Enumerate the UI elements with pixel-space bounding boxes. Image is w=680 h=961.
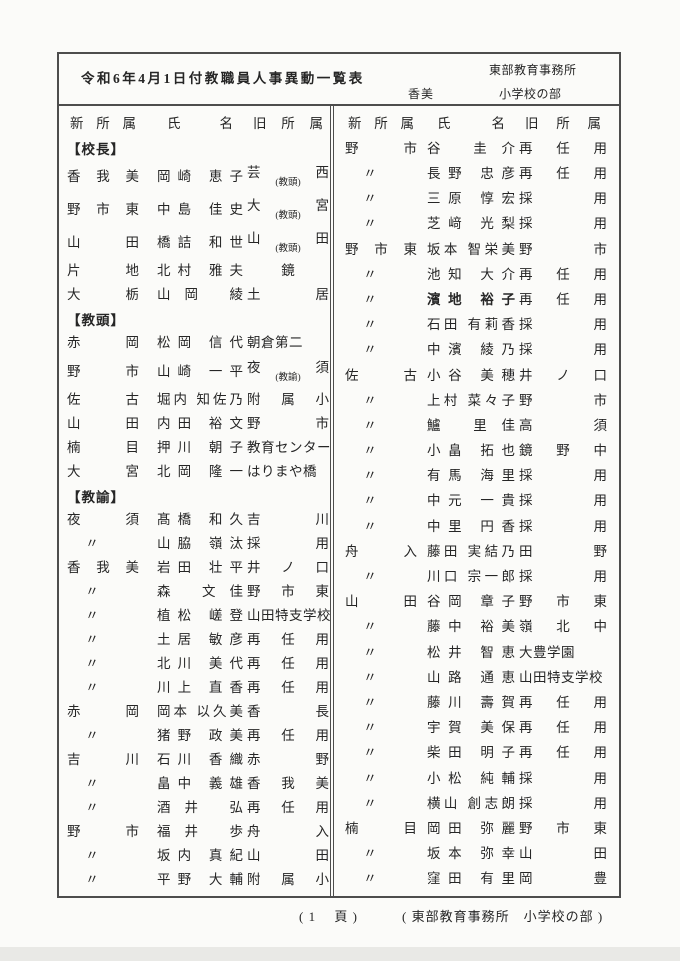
cell-name: 山脇 嶺汰 [157, 536, 243, 552]
cell-old-affiliation: 井ノ口 [519, 368, 607, 384]
table-row: 〃長野 忠彦再任用 [345, 161, 615, 186]
cell-new-affiliation: 〃 [345, 796, 417, 812]
cell-name: 畠中 義雄 [157, 776, 243, 792]
cell-name: 中元 一貴 [427, 493, 515, 509]
cell-old-affiliation: 野市東 [519, 821, 607, 837]
cell-new-affiliation: 〃 [345, 745, 417, 761]
cell-name: 山岡 綾 [157, 287, 243, 303]
table-row: 赤岡岡本 以久美香長 [67, 700, 331, 724]
cell-name: 内田 裕文 [157, 416, 243, 432]
table-row: 大宮北岡 隆一はりまや橋 [67, 460, 331, 484]
cell-name: 藤川 壽賀 [427, 695, 515, 711]
table-row: 〃宇賀 美保再任用 [345, 715, 615, 740]
table-row: 野市東坂本 智栄美野市 [345, 237, 615, 262]
cell-name: 岡本 以久美 [157, 704, 243, 720]
cell-old-affiliation: 採用 [519, 796, 607, 812]
cell-new-affiliation: 〃 [67, 680, 139, 696]
cell-old-affiliation: 採用 [519, 493, 607, 509]
cell-new-affiliation: 楠目 [67, 440, 139, 456]
cell-old-affiliation: 芸西(教頭) [247, 165, 329, 188]
cell-old-affiliation: 再任用 [519, 745, 607, 761]
cell-new-affiliation: 山田 [67, 235, 139, 251]
cell-name: 藤田 実結乃 [427, 544, 515, 560]
cell-old-affiliation: 再任用 [519, 267, 607, 283]
cell-name: 北村 雅夫 [157, 263, 243, 279]
table-row: 香我美岩田 壮平井ノ口 [67, 556, 331, 580]
cell-name: 有馬 海里 [427, 468, 515, 484]
table-row: 吉川石川 香織赤野 [67, 748, 331, 772]
table-row: 夜須髙橋 和久吉川 [67, 508, 331, 532]
table-row: 〃山脇 嶺汰採用 [67, 532, 331, 556]
cell-name: 小松 純輔 [427, 771, 515, 787]
table-row: 〃中元 一貴採用 [345, 489, 615, 514]
header-new-affiliation: 新所属 [67, 112, 139, 132]
cell-new-affiliation: 佐古 [67, 392, 139, 408]
cell-name: 岡田 弥麗 [427, 821, 515, 837]
cell-old-affiliation: 山田特支学校 [247, 608, 329, 624]
cell-name: 松井 智恵 [427, 645, 515, 661]
cell-new-affiliation: 〃 [345, 342, 417, 358]
section-header: 【教頭】 [67, 307, 331, 331]
table-row: 野市東中島 佳史大宮(教頭) [67, 193, 331, 226]
cell-name: 小谷 美穂 [427, 368, 515, 384]
cell-old-affiliation: 附属小 [247, 392, 329, 408]
cell-old-affiliation: 野市東 [519, 594, 607, 610]
cell-name: 中里 円香 [427, 519, 515, 535]
cell-new-affiliation: 夜須 [67, 512, 139, 528]
table-row: 楠目押川 朝子教育センター [67, 436, 331, 460]
table-row: 大栃山岡 綾土居 [67, 283, 331, 307]
scan-edge-band [0, 947, 680, 961]
table-row: 野市谷 圭介再任用 [345, 136, 615, 161]
table-row: 〃中濱 綾乃採用 [345, 338, 615, 363]
cell-name: 中濱 綾乃 [427, 342, 515, 358]
cell-new-affiliation: 〃 [345, 720, 417, 736]
page-number: ( 1 頁 ) [299, 906, 358, 925]
cell-old-affiliation: 山田特支学校 [519, 670, 607, 686]
cell-new-affiliation: 〃 [67, 584, 139, 600]
cell-old-affiliation: 再任用 [247, 656, 329, 672]
cell-new-affiliation: 〃 [345, 493, 417, 509]
cell-old-affiliation: 採用 [519, 569, 607, 585]
table-row: 〃藤中 裕美嶺北中 [345, 615, 615, 640]
cell-new-affiliation: 〃 [345, 695, 417, 711]
table-row: 〃芝﨑 光梨採用 [345, 212, 615, 237]
cell-old-affiliation: 大豊学園 [519, 645, 607, 661]
cell-new-affiliation: 〃 [345, 216, 417, 232]
cell-old-affiliation: 吉川 [247, 512, 329, 528]
cell-old-affiliation: 採用 [519, 468, 607, 484]
header-old-affiliation: 旧所属 [519, 112, 607, 132]
cell-old-affiliation: 再任用 [519, 141, 607, 157]
table-column-right: 野市谷 圭介再任用〃長野 忠彦再任用〃三原 惇宏採用〃芝﨑 光梨採用野市東坂本 … [345, 136, 615, 892]
cell-new-affiliation: 〃 [67, 728, 139, 744]
cell-new-affiliation: 片地 [67, 263, 139, 279]
table-row: 〃土居 敏彦再任用 [67, 628, 331, 652]
table-row: 片地北村 雅夫鏡 [67, 259, 331, 283]
table-row: 佐古小谷 美穂井ノ口 [345, 363, 615, 388]
cell-name: 山路 通恵 [427, 670, 515, 686]
cell-old-affiliation: 再任用 [247, 800, 329, 816]
table-row: 楠目岡田 弥麗野市東 [345, 816, 615, 841]
cell-new-affiliation: 野市 [67, 364, 139, 380]
column-headers-left: 新所属 氏名 旧所属 [67, 110, 329, 134]
cell-old-affiliation: 再任用 [519, 720, 607, 736]
cell-name: 髙橋 和久 [157, 512, 243, 528]
cell-old-affiliation: 井ノ口 [247, 560, 329, 576]
region-label: 香美 [408, 85, 434, 102]
cell-old-affiliation: 嶺北中 [519, 619, 607, 635]
cell-old-affiliation: 再任用 [519, 695, 607, 711]
cell-name: 宇賀 美保 [427, 720, 515, 736]
column-headers-right: 新所属 氏名 旧所属 [345, 110, 607, 134]
cell-old-affiliation: 赤野 [247, 752, 329, 768]
table-row: 〃坂内 真紀山田 [67, 844, 331, 868]
cell-old-affiliation: 採用 [519, 342, 607, 358]
table-row: 〃川口 宗一郎採用 [345, 564, 615, 589]
cell-old-affiliation: 夜須(教諭) [247, 360, 329, 383]
cell-new-affiliation: 大栃 [67, 287, 139, 303]
cell-name: 長野 忠彦 [427, 166, 515, 182]
cell-old-affiliation: 香長 [247, 704, 329, 720]
table-row: 野市福井 歩舟入 [67, 820, 331, 844]
cell-new-affiliation: 〃 [67, 656, 139, 672]
cell-name: 福井 歩 [157, 824, 243, 840]
cell-name: 濱地 裕子 [427, 292, 515, 308]
cell-old-affiliation: 高須 [519, 418, 607, 434]
school-section-label: 小学校の部 [499, 85, 562, 102]
section-label: 【教頭】 [67, 309, 125, 329]
cell-name: 横山 創志朗 [427, 796, 515, 812]
cell-old-affiliation: 教育センター [247, 440, 329, 456]
office-name: 東部教育事務所 [489, 61, 577, 78]
table-row: 舟入藤田 実結乃田野 [345, 539, 615, 564]
cell-new-affiliation: 〃 [345, 569, 417, 585]
cell-old-affiliation: 山田 [519, 846, 607, 862]
cell-name: 川口 宗一郎 [427, 569, 515, 585]
table-row: 赤岡松岡 信代朝倉第二 [67, 331, 331, 355]
cell-name: 北川 美代 [157, 656, 243, 672]
cell-name: 岩田 壮平 [157, 560, 243, 576]
cell-old-affiliation: 野市 [519, 393, 607, 409]
cell-old-affiliation: 採用 [519, 317, 607, 333]
cell-old-affiliation: 採用 [247, 536, 329, 552]
table-row: 〃濱地 裕子再任用 [345, 287, 615, 312]
table-row: 〃三原 惇宏採用 [345, 186, 615, 211]
cell-new-affiliation: 〃 [345, 871, 417, 887]
cell-old-affiliation: 岡豊 [519, 871, 607, 887]
cell-old-affiliation: 鏡野中 [519, 443, 607, 459]
cell-new-affiliation: 〃 [67, 776, 139, 792]
cell-new-affiliation: 〃 [345, 846, 417, 862]
cell-old-affiliation: 大宮(教頭) [247, 198, 329, 221]
cell-name: 植松 嵯登 [157, 608, 243, 624]
scanned-document-page: 令和6年4月1日付教職員人事異動一覧表 東部教育事務所 香美 小学校の部 新所属… [0, 0, 680, 961]
table-row: 〃松井 智恵大豊学園 [345, 640, 615, 665]
cell-new-affiliation: 〃 [345, 468, 417, 484]
cell-new-affiliation: 野市東 [67, 202, 139, 218]
table-row: 〃小松 純輔採用 [345, 766, 615, 791]
document-title: 令和6年4月1日付教職員人事異動一覧表 [81, 67, 365, 87]
table-row: 山田橋詰 和世山田(教頭) [67, 226, 331, 259]
cell-new-affiliation: 〃 [67, 800, 139, 816]
cell-new-affiliation: 〃 [345, 166, 417, 182]
table-row: 〃柴田 明子再任用 [345, 741, 615, 766]
cell-name: 川上 直香 [157, 680, 243, 696]
table-row: 〃平野 大輔附属小 [67, 868, 331, 892]
table-row: 〃猪野 政美再任用 [67, 724, 331, 748]
cell-old-affiliation: 舟入 [247, 824, 329, 840]
cell-old-affiliation: はりまや橋 [247, 464, 329, 480]
cell-new-affiliation: 野市 [345, 141, 417, 157]
cell-new-affiliation: 赤岡 [67, 704, 139, 720]
section-header: 【校長】 [67, 136, 331, 160]
section-label: 【校長】 [67, 138, 125, 158]
cell-name: 岡崎 恵子 [157, 169, 243, 185]
cell-new-affiliation: 〃 [345, 443, 417, 459]
table-row: 〃植松 嵯登山田特支学校 [67, 604, 331, 628]
table-row: 〃森 文佳野市東 [67, 580, 331, 604]
cell-name: 藤中 裕美 [427, 619, 515, 635]
cell-name: 上村 菜々子 [427, 393, 515, 409]
cell-new-affiliation: 〃 [67, 536, 139, 552]
cell-new-affiliation: 〃 [345, 670, 417, 686]
cell-new-affiliation: 〃 [345, 418, 417, 434]
cell-new-affiliation: 〃 [345, 292, 417, 308]
cell-new-affiliation: 赤岡 [67, 335, 139, 351]
table-row: 〃藤川 壽賀再任用 [345, 690, 615, 715]
cell-new-affiliation: 舟入 [345, 544, 417, 560]
cell-new-affiliation: 〃 [345, 771, 417, 787]
cell-name: 酒井 弘 [157, 800, 243, 816]
cell-name: 芝﨑 光梨 [427, 216, 515, 232]
cell-name: 坂本 弥幸 [427, 846, 515, 862]
table-row: 〃川上 直香再任用 [67, 676, 331, 700]
cell-old-affiliation: 朝倉第二 [247, 335, 329, 351]
table-row: 〃窪田 有里岡豊 [345, 866, 615, 891]
header-new-affiliation: 新所属 [345, 112, 417, 132]
cell-new-affiliation: 〃 [345, 191, 417, 207]
cell-old-affiliation: 再任用 [247, 632, 329, 648]
header-name: 氏名 [427, 112, 515, 132]
table-row: 〃山路 通恵山田特支学校 [345, 665, 615, 690]
cell-name: 石田 有莉香 [427, 317, 515, 333]
cell-old-affiliation: 田野 [519, 544, 607, 560]
table-row: 〃坂本 弥幸山田 [345, 841, 615, 866]
cell-new-affiliation: 〃 [67, 872, 139, 888]
cell-name: 平野 大輔 [157, 872, 243, 888]
cell-name: 橋詰 和世 [157, 235, 243, 251]
cell-new-affiliation: 山田 [67, 416, 139, 432]
cell-name: 鱸 里佳 [427, 418, 515, 434]
personnel-table: 令和6年4月1日付教職員人事異動一覧表 東部教育事務所 香美 小学校の部 新所属… [57, 52, 621, 898]
cell-name: 小畠 拓也 [427, 443, 515, 459]
table-row: 〃小畠 拓也鏡野中 [345, 438, 615, 463]
cell-old-affiliation: 再任用 [247, 728, 329, 744]
table-row: 〃北川 美代再任用 [67, 652, 331, 676]
table-row: 〃鱸 里佳高須 [345, 413, 615, 438]
cell-old-affiliation: 採用 [519, 191, 607, 207]
cell-name: 坂本 智栄美 [427, 242, 515, 258]
cell-new-affiliation: 〃 [345, 317, 417, 333]
section-header: 【教諭】 [67, 484, 331, 508]
cell-old-affiliation: 採用 [519, 771, 607, 787]
cell-new-affiliation: 〃 [345, 619, 417, 635]
table-row: 〃石田 有莉香採用 [345, 312, 615, 337]
cell-old-affiliation: 山田 [247, 848, 329, 864]
table-row: 山田谷岡 章子野市東 [345, 589, 615, 614]
header-old-affiliation: 旧所属 [247, 112, 329, 132]
cell-name: 三原 惇宏 [427, 191, 515, 207]
table-row: 〃横山 創志朗採用 [345, 791, 615, 816]
cell-old-affiliation: 野市 [519, 242, 607, 258]
page-footer: ( 1 頁 ) ( 東部教育事務所 小学校の部 ) [0, 906, 680, 926]
table-row: 〃池知 大介再任用 [345, 262, 615, 287]
cell-name: 堀内 知佐乃 [157, 392, 243, 408]
header-divider-line [57, 104, 621, 106]
section-label: 【教諭】 [67, 486, 125, 506]
table-row: 佐古堀内 知佐乃附属小 [67, 388, 331, 412]
cell-name: 中島 佳史 [157, 202, 243, 218]
table-row: 〃酒井 弘再任用 [67, 796, 331, 820]
cell-new-affiliation: 香我美 [67, 560, 139, 576]
cell-new-affiliation: 吉川 [67, 752, 139, 768]
cell-name: 池知 大介 [427, 267, 515, 283]
cell-name: 森 文佳 [157, 584, 243, 600]
cell-old-affiliation: 香我美 [247, 776, 329, 792]
cell-old-affiliation: 土居 [247, 287, 329, 303]
cell-new-affiliation: 〃 [67, 608, 139, 624]
cell-name: 山崎 一平 [157, 364, 243, 380]
cell-old-affiliation: 再任用 [519, 292, 607, 308]
footer-office-label: ( 東部教育事務所 小学校の部 ) [402, 906, 603, 925]
cell-old-affiliation: 野市東 [247, 584, 329, 600]
cell-new-affiliation: 〃 [345, 393, 417, 409]
cell-name: 猪野 政美 [157, 728, 243, 744]
table-row: 野市山崎 一平夜須(教諭) [67, 355, 331, 388]
cell-new-affiliation: 〃 [67, 632, 139, 648]
cell-old-affiliation: 鏡 [247, 263, 329, 279]
cell-name: 窪田 有里 [427, 871, 515, 887]
cell-name: 谷 圭介 [427, 141, 515, 157]
table-row: 〃中里 円香採用 [345, 514, 615, 539]
cell-new-affiliation: 〃 [345, 645, 417, 661]
cell-new-affiliation: 大宮 [67, 464, 139, 480]
cell-name: 松岡 信代 [157, 335, 243, 351]
cell-name: 土居 敏彦 [157, 632, 243, 648]
cell-old-affiliation: 附属小 [247, 872, 329, 888]
cell-name: 柴田 明子 [427, 745, 515, 761]
cell-new-affiliation: 野市 [67, 824, 139, 840]
cell-old-affiliation: 採用 [519, 519, 607, 535]
table-row: 香我美岡崎 恵子芸西(教頭) [67, 160, 331, 193]
cell-new-affiliation: 〃 [345, 267, 417, 283]
table-row: 山田内田 裕文野市 [67, 412, 331, 436]
cell-old-affiliation: 再任用 [519, 166, 607, 182]
cell-name: 坂内 真紀 [157, 848, 243, 864]
cell-new-affiliation: 野市東 [345, 242, 417, 258]
cell-old-affiliation: 野市 [247, 416, 329, 432]
cell-new-affiliation: 佐古 [345, 368, 417, 384]
cell-name: 北岡 隆一 [157, 464, 243, 480]
table-row: 〃畠中 義雄香我美 [67, 772, 331, 796]
cell-new-affiliation: 〃 [67, 848, 139, 864]
cell-new-affiliation: 香我美 [67, 169, 139, 185]
cell-old-affiliation: 再任用 [247, 680, 329, 696]
cell-old-affiliation: 採用 [519, 216, 607, 232]
table-column-left: 【校長】香我美岡崎 恵子芸西(教頭)野市東中島 佳史大宮(教頭)山田橋詰 和世山… [67, 136, 331, 892]
cell-name: 石川 香織 [157, 752, 243, 768]
header-name: 氏名 [157, 112, 243, 132]
cell-old-affiliation: 山田(教頭) [247, 231, 329, 254]
cell-name: 押川 朝子 [157, 440, 243, 456]
cell-new-affiliation: 楠目 [345, 821, 417, 837]
table-row: 〃上村 菜々子野市 [345, 388, 615, 413]
table-row: 〃有馬 海里採用 [345, 463, 615, 488]
cell-name: 谷岡 章子 [427, 594, 515, 610]
cell-new-affiliation: 山田 [345, 594, 417, 610]
cell-new-affiliation: 〃 [345, 519, 417, 535]
